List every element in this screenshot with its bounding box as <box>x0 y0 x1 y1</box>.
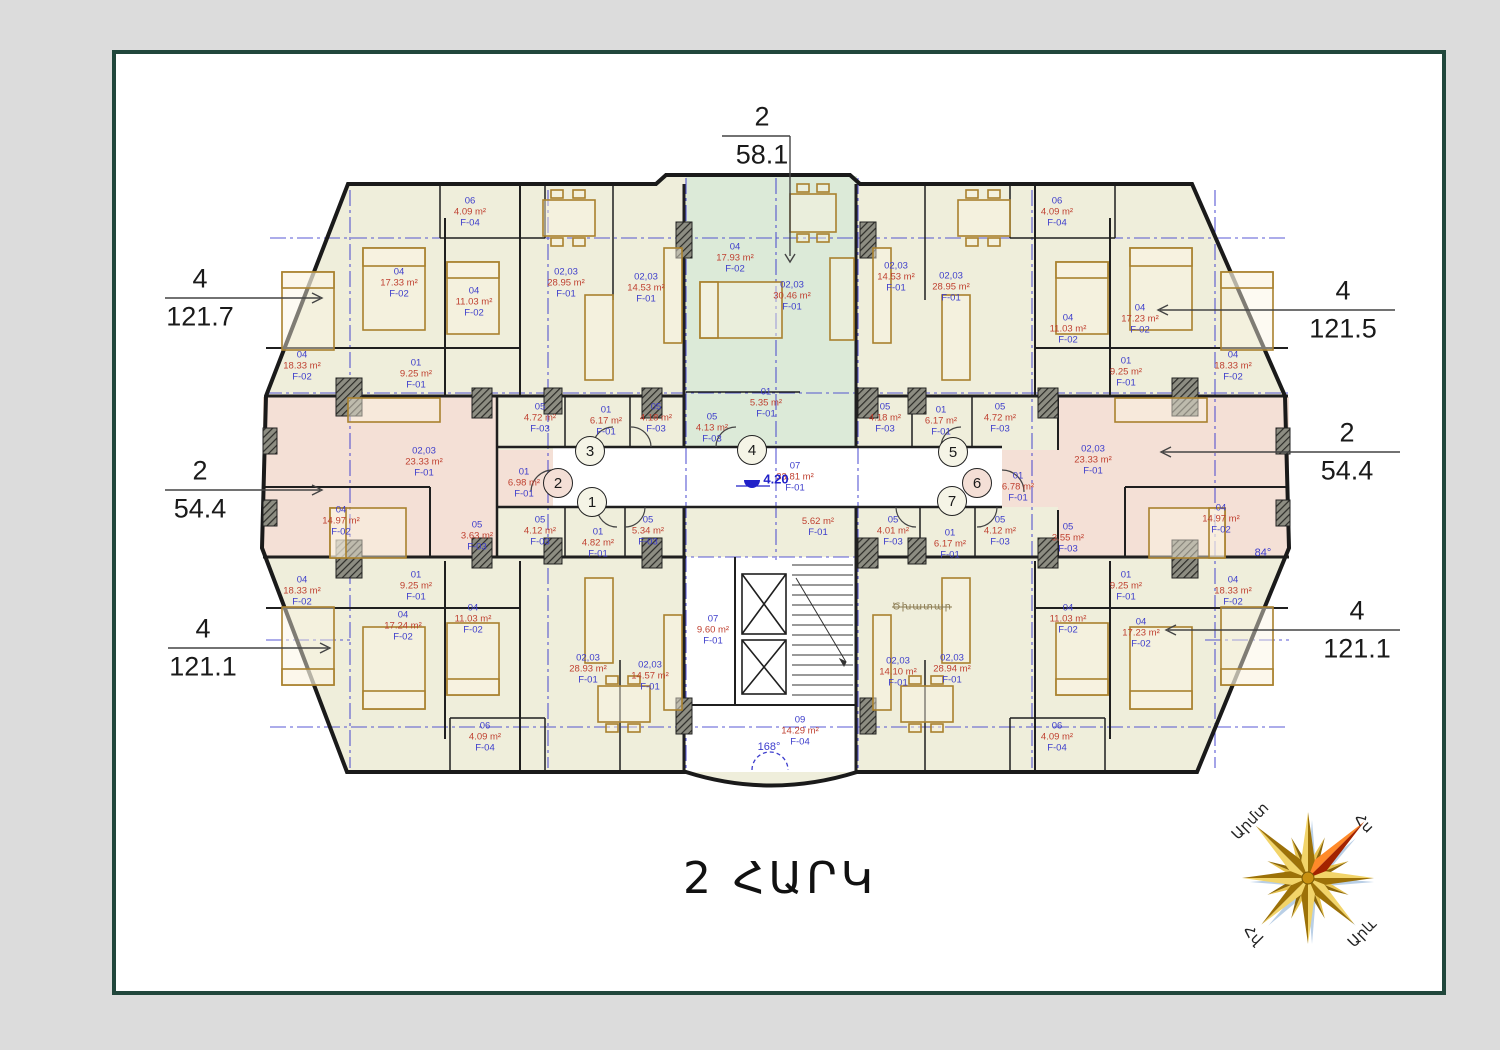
floor-title: 2 ՀԱՐԿ <box>683 853 877 904</box>
